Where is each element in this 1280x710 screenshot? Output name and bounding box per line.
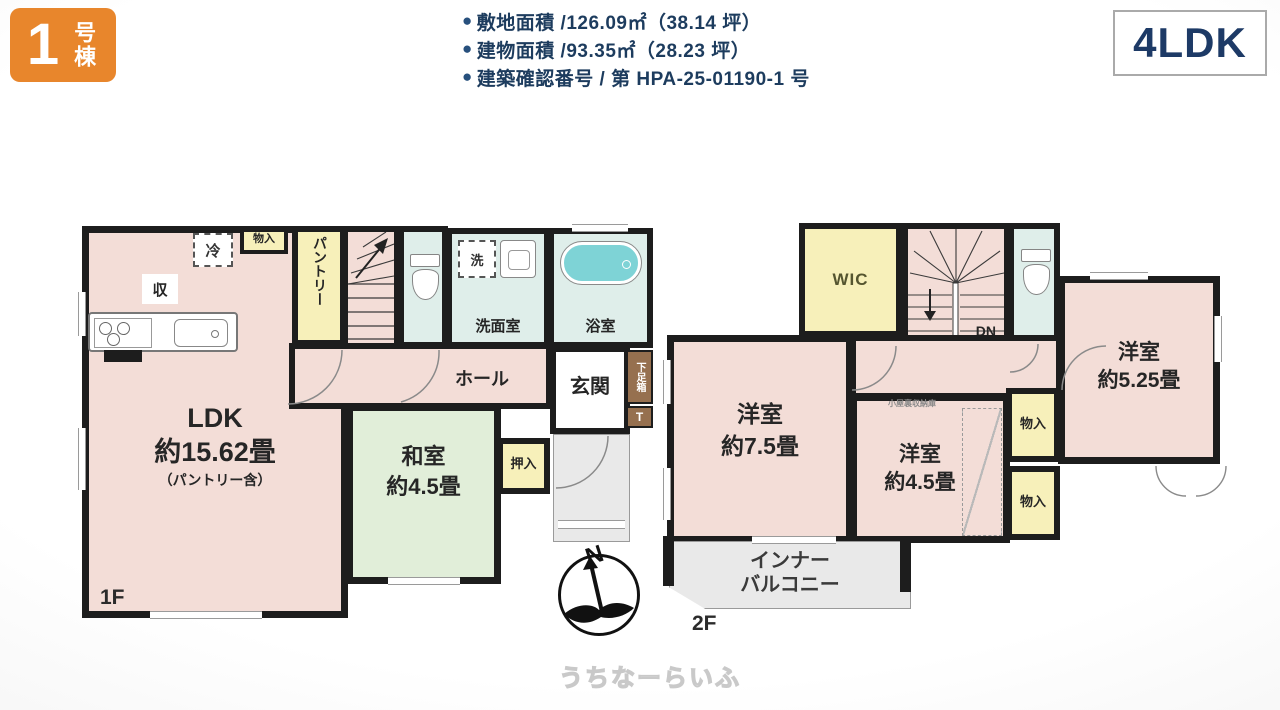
washer-space: 洗 (458, 240, 496, 278)
room-toilet-2f (1008, 223, 1060, 346)
room-senmenshitsu-label: 洗面室 (452, 317, 544, 337)
detail-row-site-area: ● 敷地面積 /126.09㎡（38.14 坪） (462, 7, 810, 35)
bullet-icon: ● (462, 67, 473, 87)
inner-balcony-label-1: インナー (670, 548, 910, 574)
storage-shu-label: 収 (152, 279, 167, 300)
kitchen-counter (88, 312, 238, 352)
stairs-2f: DN (902, 223, 1010, 347)
attic-storage-note: 小屋裏収納庫 (888, 398, 936, 409)
shoebox: 下足箱 (626, 350, 653, 404)
room-washitsu: 和室 約4.5畳 (346, 404, 501, 584)
closet-monoire-2f-lower-label: 物入 (1012, 494, 1054, 511)
site-watermark: うちなーらいふ (520, 658, 780, 693)
closet-monoire-2f-upper: 物入 (1006, 388, 1060, 462)
washer-label: 洗 (470, 250, 483, 269)
toilet-icon (1021, 249, 1051, 295)
window (78, 428, 86, 490)
detail-text: 敷地面積 /126.09㎡（38.14 坪） (477, 8, 762, 35)
detail-row-building-area: ● 建物面積 /93.35㎡（28.23 坪） (462, 35, 810, 63)
shoebox-label: 下足箱 (632, 362, 647, 392)
fridge-space: 冷 (193, 233, 233, 267)
window (572, 224, 628, 232)
balcony-wall (663, 536, 674, 586)
inner-balcony-label-2: バルコニー (670, 572, 910, 598)
room-senmenshitsu: 洗 洗面室 (446, 228, 550, 348)
room-hall-label: ホール (455, 365, 509, 391)
wall-stub (104, 350, 142, 362)
storage-shu: 収 (142, 274, 178, 304)
room-yoshitsu-525: 洋室 約5.25畳 (1058, 276, 1220, 464)
plan-type-badge: 4LDK (1113, 10, 1267, 76)
room-toilet-1f (398, 226, 448, 348)
room-hall: ホール (289, 343, 552, 409)
closet-oshiire: 押入 (497, 438, 550, 494)
kitchen-sink (174, 319, 228, 347)
building-number-suffix: 号棟 (67, 21, 99, 69)
building-number-badge: 1 号棟 (10, 8, 116, 82)
room-ldk-note: （パントリー含） (89, 471, 341, 489)
room-wic-label: WIC (805, 269, 896, 291)
floor-label-2f: 2F (692, 612, 717, 636)
room-yoshitsu-525-name: 洋室 (1065, 339, 1213, 366)
detail-row-confirmation-number: ● 建築確認番号 / 第 HPA-25-01190-1 号 (462, 63, 810, 91)
room-washitsu-name: 和室 (353, 443, 494, 472)
room-bath-label: 浴室 (554, 317, 647, 337)
building-number: 1 (27, 16, 59, 74)
stairs-treads (348, 232, 394, 346)
room-pantry: パントリー (292, 226, 346, 346)
window (1090, 272, 1148, 280)
vanity-sink (500, 240, 536, 278)
closet-monoire-2f-lower: 物入 (1006, 466, 1060, 540)
detail-text: 建築確認番号 / 第 HPA-25-01190-1 号 (477, 64, 810, 91)
window (150, 611, 262, 619)
property-details-list: ● 敷地面積 /126.09㎡（38.14 坪） ● 建物面積 /93.35㎡（… (462, 7, 810, 91)
window (752, 536, 836, 544)
window (663, 360, 671, 404)
stove (94, 318, 152, 348)
fridge-label: 冷 (205, 240, 220, 261)
toilet-icon (410, 254, 440, 300)
entrance-porch (553, 434, 630, 542)
room-washitsu-size: 約4.5畳 (353, 473, 494, 502)
room-wic: WIC (799, 223, 902, 337)
window (78, 292, 86, 336)
bullet-icon: ● (462, 11, 473, 31)
compass: N (556, 546, 648, 638)
inner-balcony: インナー バルコニー (669, 541, 911, 609)
room-yoshitsu-75-name: 洋室 (674, 400, 846, 430)
room-yoshitsu-525-size: 約5.25畳 (1065, 367, 1213, 394)
room-genkan: 玄関 (550, 346, 630, 434)
balcony-wall (900, 536, 911, 592)
closet-monoire-1f: 物入 (240, 228, 288, 254)
room-pantry-label: パントリー (310, 236, 330, 306)
stairs-1f (342, 226, 400, 352)
room-bath: 浴室 (548, 228, 653, 348)
floor-label-1f: 1F (100, 586, 125, 610)
porch-step-line (558, 520, 625, 529)
window (1214, 316, 1222, 362)
sink-drain-icon (211, 330, 219, 338)
shoebox-t-label: T (636, 410, 643, 424)
room-yoshitsu-75: 洋室 約7.5畳 (667, 335, 853, 543)
bullet-icon: ● (462, 39, 473, 59)
window (388, 577, 460, 585)
shoebox-t: T (626, 406, 653, 428)
burner-icon (107, 333, 120, 346)
room-ldk-size: 約15.62畳 (89, 435, 341, 470)
closet-oshiire-label: 押入 (503, 456, 544, 473)
detail-text: 建物面積 /93.35㎡（28.23 坪） (477, 36, 750, 63)
room-yoshitsu-75-size: 約7.5畳 (674, 432, 846, 462)
room-genkan-label: 玄関 (556, 374, 624, 400)
sink-bowl-icon (508, 250, 530, 270)
closet-monoire-1f-label: 物入 (244, 232, 284, 246)
bathtub-icon (561, 242, 641, 284)
burner-icon (117, 322, 130, 335)
window (663, 468, 671, 520)
closet-monoire-2f-upper-label: 物入 (1012, 416, 1054, 433)
attic-ladder (962, 408, 1002, 536)
